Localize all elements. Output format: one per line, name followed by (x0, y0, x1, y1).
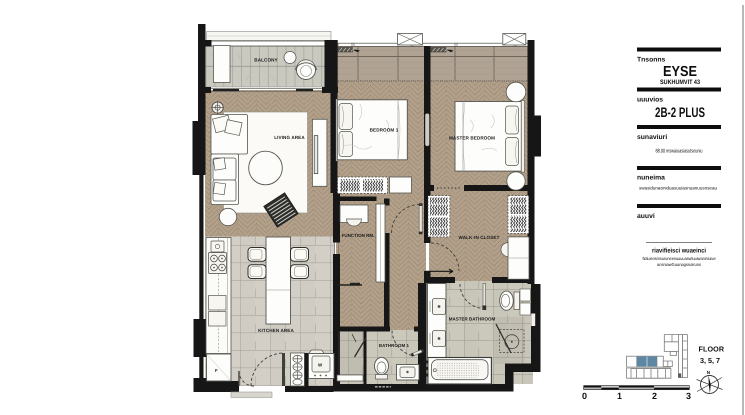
svg-text:ansniawGuunagsnoiruns: ansniawGuunagsnoiruns (657, 262, 702, 267)
svg-text:WALK-IN CLOSET: WALK-IN CLOSET (459, 235, 500, 240)
svg-text:auuvi: auuvi (637, 213, 655, 220)
svg-text:riavifieisci wuaeinci: riavifieisci wuaeinci (652, 248, 706, 255)
svg-text:MASTER BATHROOM: MASTER BATHROOM (449, 317, 496, 322)
svg-text:BALCONY: BALCONY (254, 58, 277, 63)
svg-text:fidiuiensmsuruneenuuuuaswtuuiw: fidiuiensmsuruneenuuuuaswtuuiwaninsiavi (643, 256, 716, 261)
svg-text:2: 2 (652, 391, 657, 401)
svg-text:2B-2 PLUS: 2B-2 PLUS (655, 105, 705, 120)
svg-text:BEDROOM 1: BEDROOM 1 (370, 128, 399, 133)
svg-text:1: 1 (617, 391, 622, 401)
svg-text:FLOOR: FLOOR (699, 345, 725, 354)
svg-text:swasidunaoniduasuuiasnuanuusns: swasidunaoniduasuuiasnuanuusnseau (639, 186, 717, 191)
svg-text:MASTER BEDROOM: MASTER BEDROOM (449, 136, 495, 141)
svg-text:nuneima: nuneima (637, 175, 665, 182)
svg-text:FUNCTION RM.: FUNCTION RM. (342, 233, 375, 238)
svg-text:0: 0 (582, 391, 587, 401)
svg-text:F: F (215, 368, 218, 373)
svg-text:EYSE: EYSE (663, 64, 697, 80)
svg-text:KITCHEN AREA: KITCHEN AREA (258, 328, 294, 333)
svg-text:3: 3 (686, 391, 691, 401)
svg-text:sunaviuri: sunaviuri (637, 134, 667, 141)
svg-text:Tnsonns: Tnsonns (637, 57, 666, 64)
svg-text:3, 5, 7: 3, 5, 7 (700, 356, 720, 365)
svg-text:88.00 mswaiuasiasutseuniu: 88.00 mswaiuasiasutseuniu (656, 149, 703, 155)
svg-text:SUKHUMVIT 43: SUKHUMVIT 43 (660, 79, 700, 86)
svg-text:LIVING AREA: LIVING AREA (274, 135, 305, 140)
svg-text:uuuvios: uuuvios (637, 97, 663, 104)
svg-text:BATHROOM 1: BATHROOM 1 (379, 343, 410, 348)
